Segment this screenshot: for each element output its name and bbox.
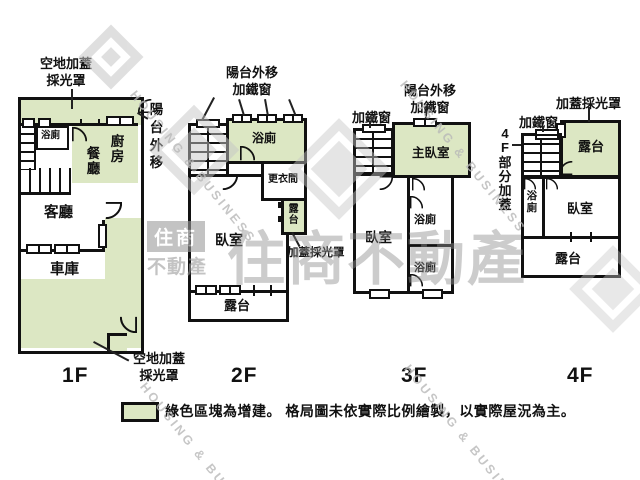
f4-terrace-top-label: 露台 [578,140,604,155]
floor-2-label: 2F [231,364,258,388]
f2-window [257,114,277,123]
legend-swatch [121,402,159,422]
f1-window [26,244,52,254]
f1-bathroom-label: 浴廁 [41,131,60,142]
floor-plan-canvas: 浴廁 餐廳 廚房 客廳 車庫 空地加蓋 採光罩 陽台外移 空地加蓋 採光罩 1F… [0,0,640,480]
f2-window [195,285,217,295]
f1-dining-label: 餐廳 [86,146,101,176]
f3-window [413,118,437,127]
f2-window [219,285,241,295]
pointer-line [71,89,73,109]
f4-terrace-bottom-label: 露台 [555,252,581,267]
door-arc [240,146,255,161]
pointer-line [264,99,269,115]
door-arc [524,178,536,190]
pointer-line [542,126,544,132]
f1-window-vertical [98,224,107,248]
f2-window [196,119,220,128]
floor-3-label: 3F [401,364,428,388]
f2-terrace-small-label: 露台 [288,204,299,226]
f1-kitchen-label: 廚房 [110,134,125,164]
f1-stairs-main [21,168,71,195]
f2-terrace-label: 露台 [224,299,250,314]
door-arc [120,316,137,333]
f2-wall-tick [270,285,272,296]
f2-door-tick [278,202,284,208]
f2-annotation-top: 陽台外移 加鐵窗 [220,64,284,98]
pointer-line [369,121,371,128]
f2-annotation-cover: 加蓋採光罩 [287,246,345,261]
door-arc [410,196,423,209]
f1-living-label: 客廳 [44,205,73,221]
f4-bedroom-label: 臥室 [567,202,593,217]
f1-annotation-top: 空地加蓋 採光罩 [30,55,102,89]
f2-stairs-rail [207,126,209,174]
f1-stairs-upper [21,126,36,170]
f3-annotation-iron: 加鐵窗 [352,109,391,126]
watermark-diamond-core [101,47,121,67]
door-arc [410,274,423,287]
legend-text: 綠色區塊為增建。 格局圖未依實際比例繪製，以實際屋況為主。 [165,404,575,420]
f1-annotation-right: 陽台外移 [149,101,164,172]
f3-annotation-top: 陽台外移 加鐵窗 [400,82,460,116]
f3-annotation-4f-partial: 4 F 部 分 加 蓋 [496,127,514,213]
f3-bath-upper-label: 浴廁 [414,214,436,226]
floor-4-label: 4F [567,364,594,388]
f3-inner-wall-h [409,244,452,247]
door-arc [105,202,122,219]
f4-wall-tick [570,232,572,242]
f1-garage-label: 車庫 [50,262,79,278]
f1-window [106,116,134,126]
f2-door-tick [278,216,284,222]
pointer-line [588,107,590,122]
door-arc [72,127,87,142]
f4-inner-wall [542,179,545,236]
door-arc [412,178,425,191]
f1-step-notch [107,333,127,351]
f2-dressing-label: 更衣間 [268,174,298,185]
f2-wall-tick [253,285,255,296]
f1-window [54,244,80,254]
f3-window [369,289,390,299]
f3-bedroom-label: 臥室 [365,230,392,245]
f2-bathroom-label: 浴廁 [252,132,276,145]
f3-master-label: 主臥室 [412,146,450,160]
f1-annotation-bottom: 空地加蓋 採光罩 [127,350,191,384]
f4-bathroom-label: 浴廁 [526,191,538,215]
f3-bath-lower-label: 浴廁 [414,262,436,274]
f3-stairs-rail [372,131,374,172]
f3-window [422,289,443,299]
pointer-line [201,97,215,121]
f4-wall-tick [590,232,592,242]
floor-1-label: 1F [62,364,89,388]
door-arc [222,174,238,190]
f2-bedroom-label: 臥室 [215,233,243,249]
f4-annotation-iron: 加鐵窗 [519,114,558,131]
door-arc [379,176,393,190]
watermark-diagonal-text: HOUSING & BUSINESS [137,380,269,480]
f2-window [283,114,303,123]
f4-stairs-rail [540,136,542,175]
door-arc [546,178,558,190]
